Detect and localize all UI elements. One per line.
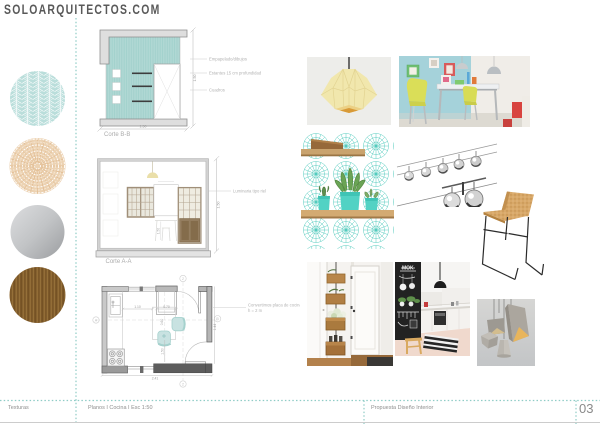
svg-text:Corte A-A: Corte A-A [106, 259, 132, 265]
svg-text:B: B [216, 317, 219, 321]
svg-text:1.50: 1.50 [160, 348, 164, 355]
svg-text:1.50: 1.50 [217, 202, 221, 209]
svg-text:1.50: 1.50 [140, 125, 147, 129]
svg-text:MOK: MOK [402, 266, 414, 272]
svg-text:Convertimos placa de cocina de: Convertimos placa de cocina de gas [248, 303, 300, 308]
svg-text:Luminaria tipo riel: Luminaria tipo riel [233, 189, 266, 194]
svg-text:1.44: 1.44 [213, 324, 217, 331]
svg-text:h = 2 m: h = 2 m [248, 308, 263, 313]
svg-text:Empapelado/dibujos: Empapelado/dibujos [209, 57, 247, 62]
svg-text:1.50: 1.50 [193, 75, 197, 82]
svg-text:A: A [95, 318, 98, 322]
svg-text:1.50: 1.50 [157, 228, 161, 234]
svg-text:2.41: 2.41 [152, 377, 159, 381]
svg-text:2: 2 [182, 277, 184, 281]
svg-text:1.10: 1.10 [134, 305, 141, 309]
svg-text:Estantes 15 cm profundidad: Estantes 15 cm profundidad [209, 71, 262, 76]
svg-text:2: 2 [182, 382, 184, 386]
svg-text:Corte B-B: Corte B-B [104, 132, 130, 138]
svg-text:0.60: 0.60 [160, 319, 164, 326]
svg-text:Cuadros: Cuadros [209, 88, 225, 93]
svg-text:0.70: 0.70 [163, 305, 170, 309]
